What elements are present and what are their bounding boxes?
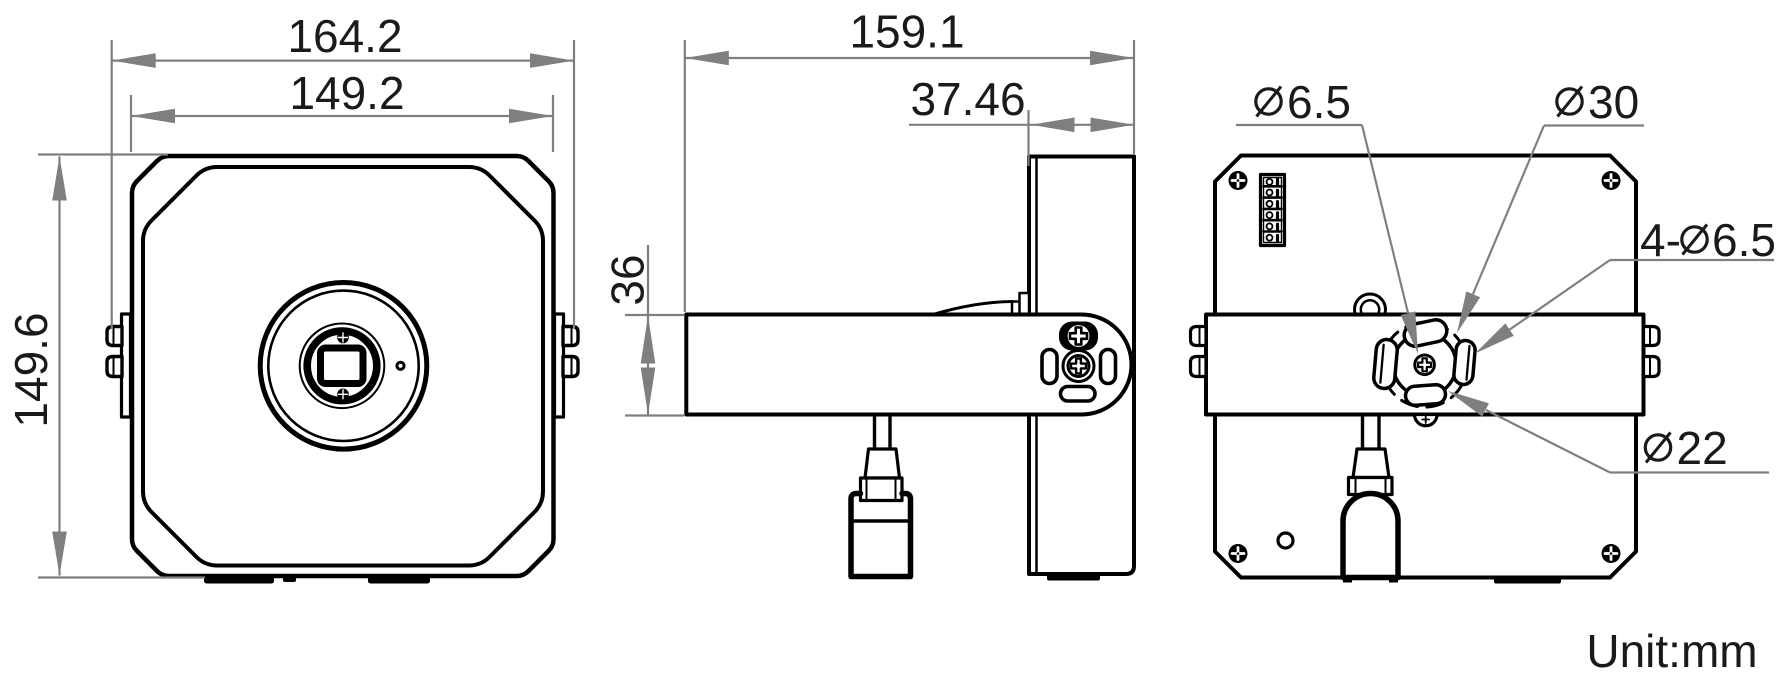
svg-text:149.6: 149.6 xyxy=(5,312,57,427)
svg-text:37.46: 37.46 xyxy=(910,73,1025,125)
svg-text:149.2: 149.2 xyxy=(289,67,404,119)
svg-text:30: 30 xyxy=(1588,76,1639,128)
svg-text:6.5: 6.5 xyxy=(1287,76,1351,128)
svg-text:4-: 4- xyxy=(1640,214,1681,266)
svg-text:Unit:mm: Unit:mm xyxy=(1586,625,1757,677)
svg-text:6.5: 6.5 xyxy=(1712,214,1776,266)
svg-text:159.1: 159.1 xyxy=(849,6,964,58)
svg-text:164.2: 164.2 xyxy=(287,10,402,62)
svg-text:22: 22 xyxy=(1677,422,1728,474)
svg-text:36: 36 xyxy=(602,254,654,305)
